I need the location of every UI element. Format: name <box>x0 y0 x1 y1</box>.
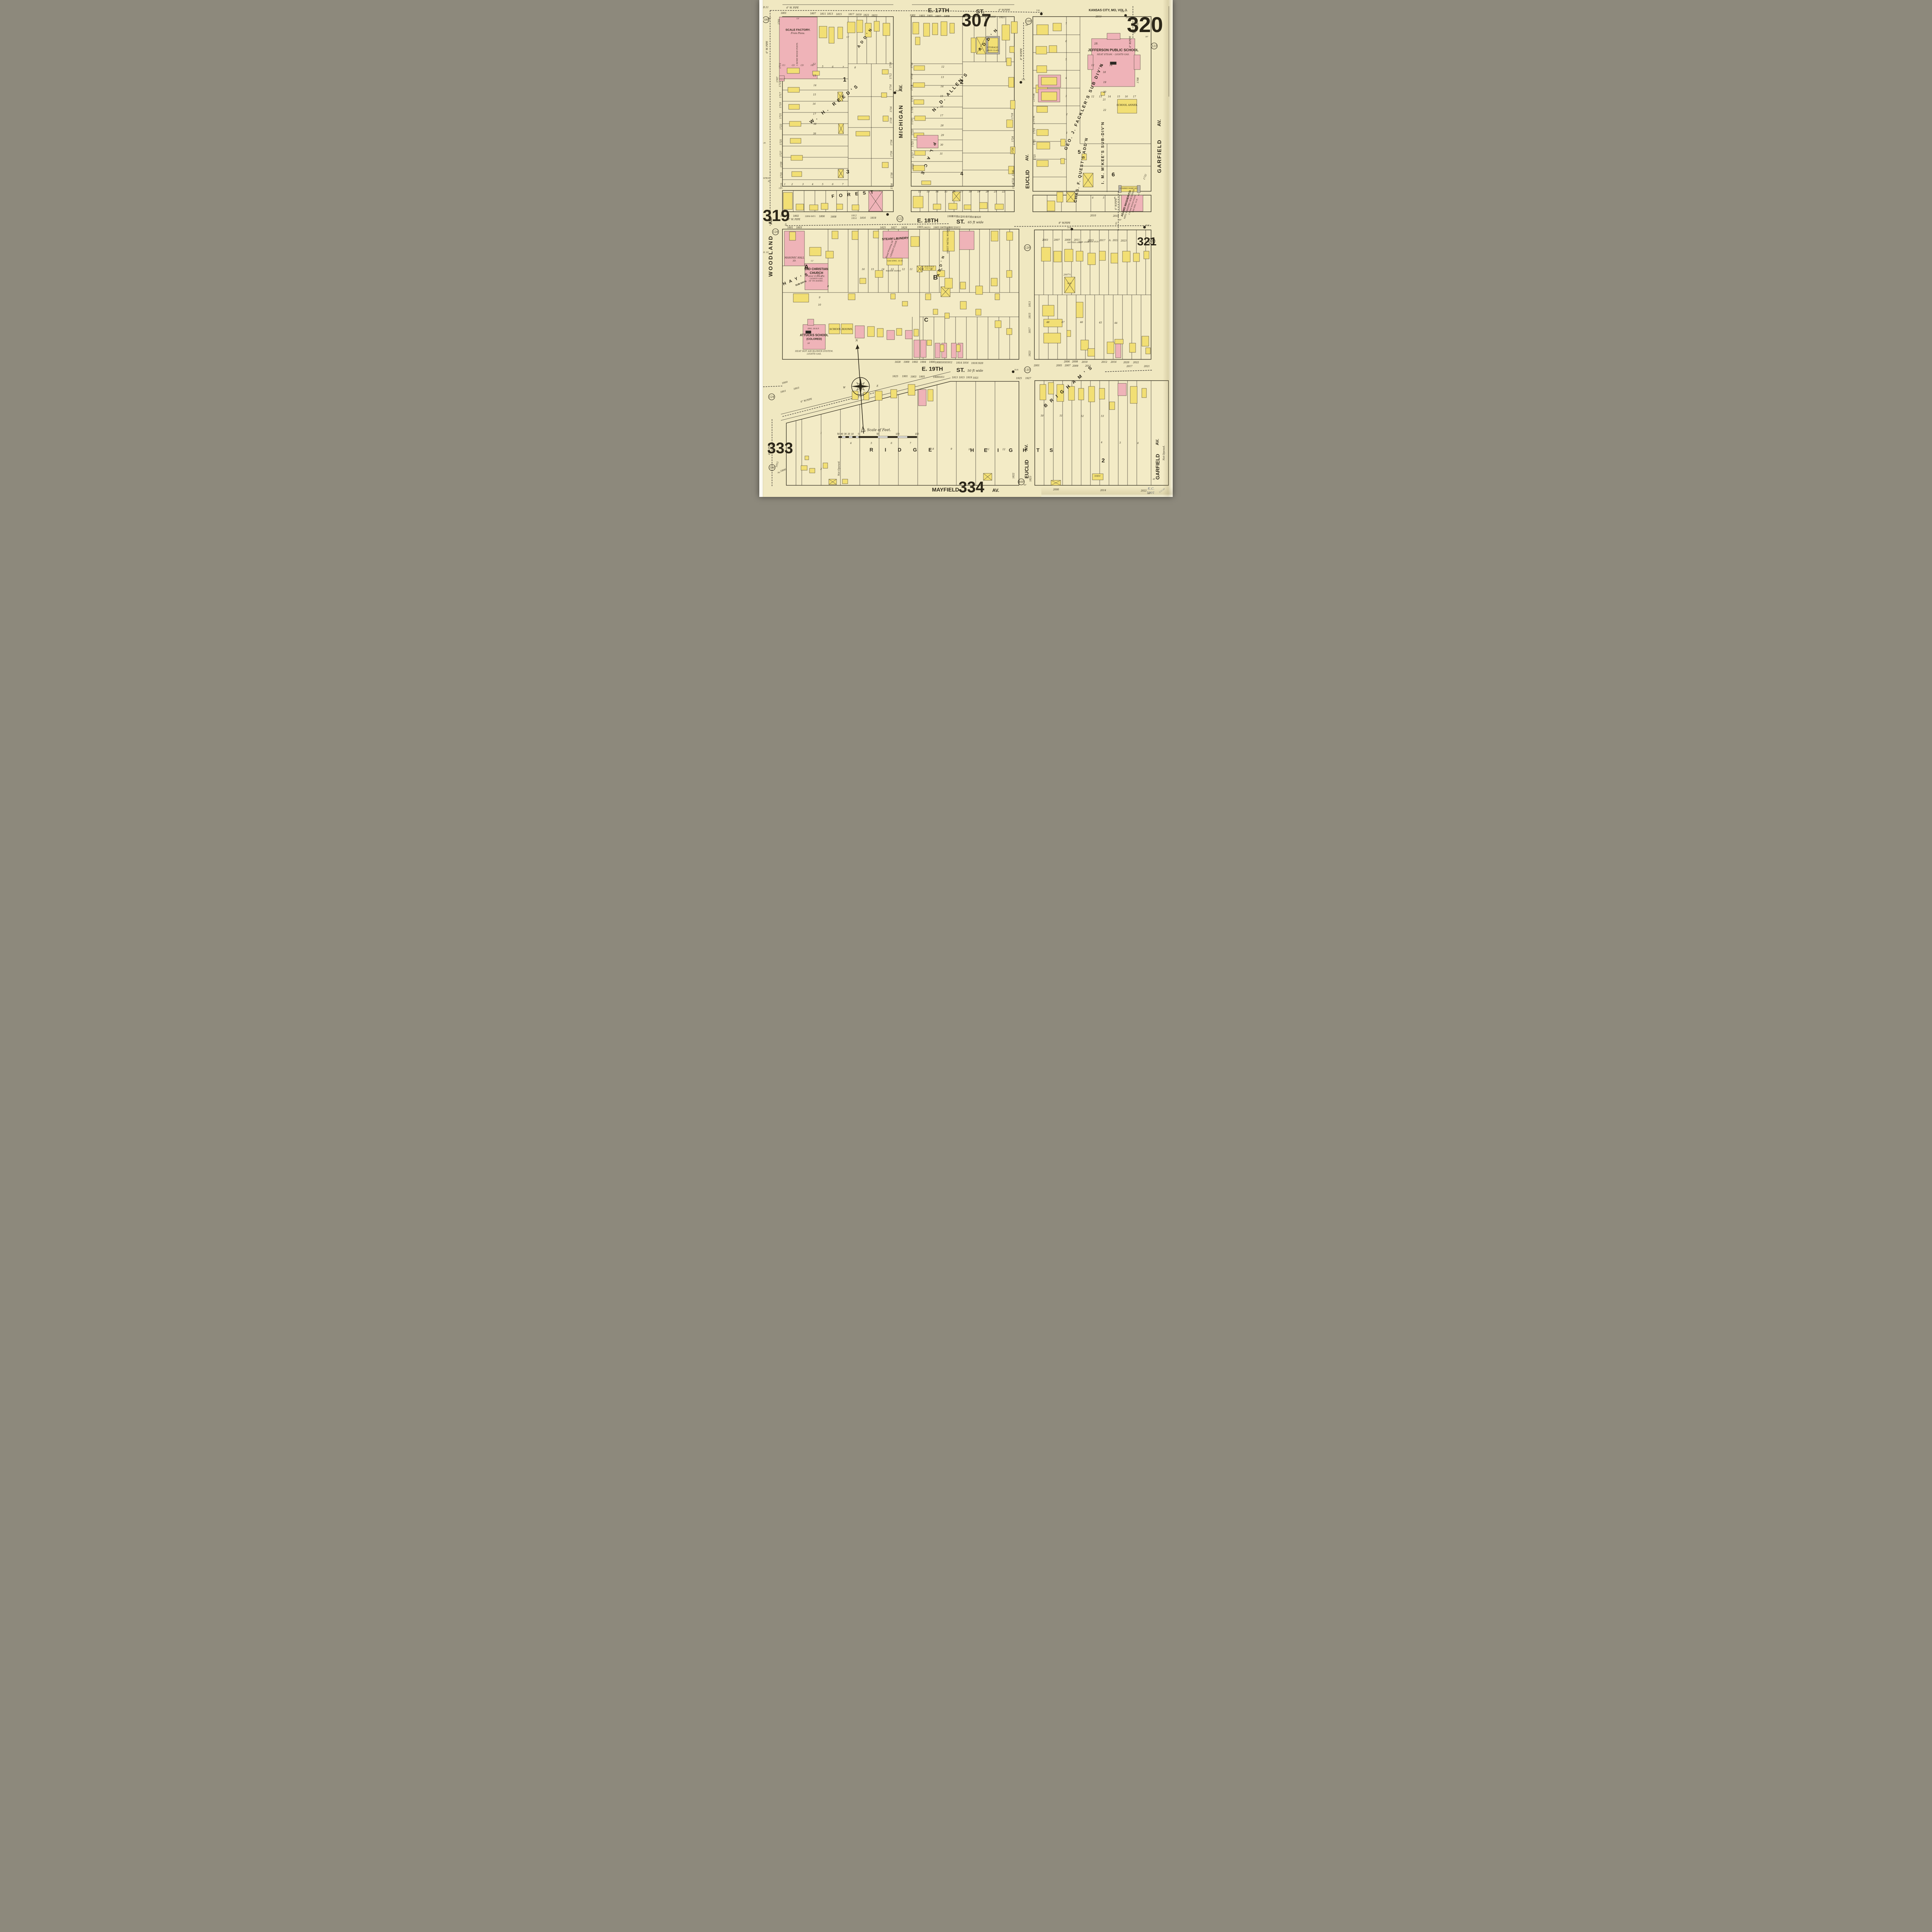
map-label: 1718 <box>890 117 893 123</box>
building-frame <box>1011 22 1017 33</box>
map-label: 1719 <box>1034 128 1036 134</box>
map-label: 1730 <box>891 172 893 178</box>
pipe-ref-number: 100 <box>763 19 769 22</box>
map-label: D.H. <box>1014 369 1019 371</box>
map-label: 2020 <box>1123 362 1129 364</box>
map-label: 1724 <box>891 139 893 145</box>
map-label: 1700 <box>1137 22 1139 28</box>
map-label: 4" W. PIPE <box>786 7 799 9</box>
pipe-ref-number: 120 <box>1025 247 1030 250</box>
map-label: 2012 <box>1101 361 1107 364</box>
map-label: 1723 <box>780 124 782 129</box>
building-frame <box>1041 247 1051 261</box>
scan-edge <box>759 0 763 497</box>
water-pipe-line <box>1014 226 1151 226</box>
map-label: 8 <box>827 286 829 288</box>
map-label: 51 <box>1060 415 1063 417</box>
map-label: 1725 <box>912 141 914 147</box>
map-label: 28' <box>808 343 810 345</box>
pipe-ref-number: 122 <box>897 218 903 221</box>
building-frame <box>852 391 858 400</box>
block-c: C <box>924 317 929 323</box>
map-label: 2021 <box>1144 366 1150 368</box>
map-label: 1905 <box>919 376 925 378</box>
pipe-ref-number: 109 <box>1026 20 1031 23</box>
map-label: 9 <box>930 269 932 271</box>
map-label: 1828 <box>895 361 900 364</box>
scale-bar-segment <box>859 436 878 438</box>
map-label: 6" W.PIPE <box>1129 36 1132 48</box>
building-frame <box>1107 342 1114 354</box>
map-label: 14 <box>940 86 944 88</box>
bldg-school-annex: SCHOOL ANNEX. <box>1116 104 1138 107</box>
block-b: B <box>933 274 938 281</box>
building-frame <box>787 68 799 73</box>
map-label: AV. <box>1156 439 1160 446</box>
scale-tick-label: 150 <box>915 433 919 435</box>
building-frame <box>911 236 919 247</box>
map-label: 19 <box>1103 82 1106 84</box>
map-label: 6 <box>1092 197 1094 199</box>
building-frame <box>933 204 941 209</box>
building-frame <box>1037 25 1048 35</box>
street-euclid-upper: EUCLID <box>1025 170 1030 189</box>
building-frame <box>1007 120 1013 128</box>
building-frame <box>1061 139 1065 146</box>
map-label: (IRON CLAD) <box>986 50 998 52</box>
map-label: 1912 <box>946 362 952 364</box>
map-label: A. <box>1109 240 1111 242</box>
building-frame <box>914 100 924 104</box>
map-label: 7 <box>821 276 823 278</box>
map-label: 12 <box>1091 96 1094 98</box>
map-label: 46 <box>1080 321 1083 324</box>
map-label: 1806 <box>819 216 825 218</box>
building-frame <box>789 104 799 109</box>
building-frame <box>1041 92 1057 100</box>
scale-bar-segment <box>838 436 842 438</box>
pipe-ref-number: 123 <box>1151 45 1157 48</box>
scale-tick-label: 100 <box>896 433 900 435</box>
map-label: 20 <box>1103 91 1106 94</box>
map-label: D.H. <box>1145 225 1150 227</box>
map-label: 5 <box>822 184 823 186</box>
map-label: 6 <box>1065 41 1067 43</box>
map-label: T.H. <box>1036 10 1040 12</box>
map-label: 65 ft wide <box>968 221 984 224</box>
map-label: 30 <box>940 144 943 146</box>
building-frame <box>1142 388 1146 398</box>
building-frame <box>1047 201 1055 211</box>
building-frame <box>810 247 821 256</box>
map-label: 1721 <box>780 113 782 119</box>
map-label: 13 <box>1099 96 1102 98</box>
map-label: 1716 <box>890 106 893 112</box>
map-label: 13 <box>941 77 944 79</box>
building-frame <box>882 162 888 168</box>
scale-title: Scale of Feet. <box>867 429 891 432</box>
map-label: 1921 <box>973 377 978 379</box>
map-label: 1909 <box>944 15 949 18</box>
map-label: 1729 <box>912 163 915 169</box>
map-label: 1804-04½ <box>805 216 816 218</box>
map-label: 1733 <box>781 183 783 189</box>
map-label: 1905 <box>933 227 939 229</box>
map-label: 2010 <box>1082 361 1087 364</box>
map-label: 2013 <box>1095 16 1101 18</box>
map-label: 1813 <box>827 13 833 15</box>
building-frame <box>915 151 925 155</box>
map-label: 1818 <box>870 217 876 219</box>
map-label: 1816 <box>860 217 866 219</box>
building-frame <box>842 479 848 484</box>
scale-bar-segment <box>852 436 856 438</box>
map-label: GAS ENG. 15 H. <box>887 260 903 262</box>
map-label: 14 <box>881 269 884 271</box>
map-label: 20 <box>986 191 989 193</box>
map-label: D.11 <box>763 7 769 9</box>
bldg-2nd-christian-church: 2ND CHRISTIAN <box>804 268 828 271</box>
pipe-ref-number: 156 <box>769 466 775 469</box>
scale-bar-segment <box>845 436 849 438</box>
map-label: 8 <box>941 269 942 271</box>
ref-page-333: 333 <box>767 440 793 456</box>
map-label: 17 <box>1133 96 1136 98</box>
scale-tick-label: 30 <box>844 433 847 435</box>
map-label: 10 <box>818 304 821 306</box>
building-frame <box>940 345 944 352</box>
map-label: 1726 <box>891 151 893 156</box>
map-label: 3 <box>802 184 804 186</box>
map-label: 50' <box>777 472 781 474</box>
map-label: 1829 <box>901 227 907 229</box>
map-label: 50 ft wide <box>968 369 983 372</box>
building-frame <box>1078 388 1084 400</box>
map-label: 5 <box>822 66 823 68</box>
building-frame <box>838 27 843 39</box>
page-number-320: 320 <box>1127 14 1163 36</box>
map-label: 1729 <box>781 162 783 167</box>
map-label: 1717 <box>912 96 914 102</box>
map-label: 31 <box>940 153 943 155</box>
map-label: 1823 <box>871 15 877 17</box>
building-brick <box>918 389 926 406</box>
block-5: 5 <box>1078 149 1081 155</box>
map-label: 15 <box>940 95 943 98</box>
map-label: 1823 <box>1030 476 1032 481</box>
building-frame <box>875 270 883 277</box>
map-label: 16 <box>813 103 816 105</box>
map-label: 1701 <box>778 19 781 24</box>
map-label: 1711 <box>911 62 913 68</box>
building-frame <box>1010 46 1014 53</box>
building-frame <box>848 294 855 300</box>
building-frame <box>941 22 947 36</box>
map-label: 1721 <box>912 119 914 124</box>
building-brick <box>1116 344 1121 358</box>
building-frame <box>1037 129 1048 136</box>
map-label: 1921 <box>999 17 1005 19</box>
map-label: 1825 <box>880 227 886 229</box>
map-label: 50' <box>1133 32 1136 34</box>
map-label: 1823 <box>1029 350 1031 356</box>
map-label: AV. <box>768 218 773 224</box>
map-label: 2017 <box>1099 240 1105 242</box>
map-label: 1731 <box>781 172 783 178</box>
building-frame <box>980 202 987 209</box>
building-frame <box>896 328 902 335</box>
building-frame <box>991 231 998 241</box>
building-frame <box>950 23 954 33</box>
building-frame <box>933 309 938 315</box>
street-e18th: E. 18TH <box>917 218 938 224</box>
map-label: 14 <box>813 85 816 87</box>
map-label: 8" W.PIPE <box>1059 222 1070 224</box>
building-frame <box>789 121 801 126</box>
map-label: 2006 <box>1064 361 1070 363</box>
building-frame <box>867 327 874 337</box>
map-label: 2016 <box>1111 361 1116 364</box>
map-label: 19 <box>977 191 980 193</box>
map-label: 8 <box>854 67 856 69</box>
map-label: 1724 <box>1012 136 1014 142</box>
map-label: 50' <box>1119 219 1122 221</box>
street-mayfield: MAYFIELD <box>932 487 959 492</box>
map-label: E <box>877 385 878 388</box>
map-label: 1911 <box>949 227 955 229</box>
building-frame <box>1088 253 1095 265</box>
map-label: 5 <box>1103 197 1104 199</box>
map-label: 15 <box>1117 96 1120 98</box>
map-label: 1920 <box>977 362 983 365</box>
map-label: 1 <box>784 184 786 186</box>
pipe-ref-number: 124 <box>769 396 774 399</box>
building-frame <box>883 116 888 121</box>
map-label: 1803 <box>796 227 802 229</box>
building-frame <box>1049 46 1057 53</box>
street-michigan: MICHIGAN <box>898 105 903 138</box>
map-label: 50' <box>1024 485 1027 486</box>
map-label: T.H. <box>1022 79 1026 81</box>
map-label: 1915 <box>959 377 964 379</box>
map-label: 1812 <box>851 215 857 217</box>
map-label: 6" W. PIPE <box>766 41 769 53</box>
building-frame <box>1076 251 1083 261</box>
map-label: N <box>855 340 858 342</box>
map-label: 1909 <box>933 376 939 379</box>
building-frame <box>1146 348 1150 354</box>
building-brick <box>887 330 895 340</box>
map-label: 2011 <box>1074 239 1080 241</box>
map-label: 1813 <box>1029 301 1031 307</box>
map-label: 13 <box>1100 65 1103 67</box>
map-label: CHURCH <box>810 272 823 275</box>
building-brick <box>1088 55 1093 70</box>
map-label: 2007½ <box>1063 274 1071 276</box>
street-woodland: WOODLAND <box>768 235 773 277</box>
building-frame <box>883 23 890 36</box>
scale-tick-label: 50 <box>837 433 840 435</box>
map-label: 1715 <box>911 85 913 90</box>
map-label: 1927 <box>1025 378 1031 380</box>
map-label: 13' <box>817 275 820 277</box>
map-label: 1919 <box>966 377 972 379</box>
block-6: 6 <box>1112 172 1115 178</box>
building-frame <box>995 321 1001 328</box>
building-frame <box>1007 328 1012 335</box>
building-frame <box>923 23 930 36</box>
building-frame <box>1040 384 1046 400</box>
map-label: 8" W. PIPE <box>788 219 800 221</box>
map-label: 15' <box>846 37 849 39</box>
building-frame <box>810 468 815 473</box>
pipe-ref-number: 124 <box>773 231 778 234</box>
scale-tick-label: 10 <box>851 433 854 435</box>
map-label: 8 <box>932 448 934 451</box>
building-frame <box>922 181 931 185</box>
map-label: 11 <box>986 449 990 451</box>
building-frame <box>821 203 828 209</box>
street-euclid-lower: EUCLID <box>1024 460 1029 478</box>
map-label: 1902 <box>912 361 918 364</box>
map-label: 1727 <box>912 152 915 158</box>
building-frame <box>913 22 919 34</box>
building-frame <box>823 463 828 468</box>
map-label: 13 <box>891 269 894 271</box>
building-frame <box>913 83 925 87</box>
map-label: 1727 <box>780 151 782 156</box>
map-label: 1821 <box>863 14 869 17</box>
building-frame <box>1037 142 1050 149</box>
building-frame <box>806 331 811 333</box>
building-frame <box>1099 251 1105 260</box>
map-label: 60' <box>1026 25 1029 27</box>
water-pipe-line <box>940 11 1043 12</box>
map-label: 7 <box>842 66 844 69</box>
map-label: T.H. <box>1121 11 1124 13</box>
building-frame <box>1048 383 1054 394</box>
building-frame <box>1010 100 1015 109</box>
map-label: 14 <box>935 191 939 193</box>
map-label: 7 <box>842 184 844 186</box>
building-frame <box>875 391 882 400</box>
map-label: 1811 <box>820 13 826 15</box>
building-frame <box>1054 251 1061 262</box>
building-frame <box>829 27 834 43</box>
map-label: 1708 <box>1137 77 1139 83</box>
map-label: 44 <box>1114 322 1117 325</box>
building-frame <box>1088 349 1095 356</box>
map-label: 8" W.PIPE <box>1020 48 1023 60</box>
map-label: 1901 <box>910 15 915 17</box>
map-label: 1710 <box>890 62 892 68</box>
map-label: 1801 <box>787 227 793 229</box>
building-frame <box>1037 66 1047 73</box>
building-frame <box>1076 302 1083 318</box>
building-frame <box>1041 77 1057 85</box>
map-label: 1906 <box>929 361 935 364</box>
map-label: 12 <box>941 66 944 68</box>
map-label: 1822 <box>1013 473 1015 478</box>
map-label: ST. <box>956 367 965 373</box>
building-frame <box>1002 25 1010 40</box>
map-label: 1807 <box>810 13 816 15</box>
map-label: 16' TO EAVES. - <box>809 281 825 282</box>
map-label: 1 <box>1066 132 1068 134</box>
map-label: 4 <box>1114 197 1116 199</box>
map-label: 2009 <box>1072 365 1078 367</box>
map-label: 1908 <box>935 362 940 364</box>
map-label: 1920 <box>975 216 981 219</box>
paper-fold-right <box>1163 0 1173 497</box>
street-garfield-lower: GARFIELD <box>1155 454 1160 480</box>
map-label: 16 <box>862 269 865 271</box>
map-label: 4 <box>850 442 852 445</box>
map-label: 2011 <box>1085 365 1091 367</box>
map-label: AV. <box>1026 155 1030 161</box>
building-frame <box>1007 270 1012 277</box>
map-label: 50 <box>1041 415 1044 417</box>
map-label: 1719 <box>780 102 782 108</box>
block-2-ridge: 2 <box>1102 458 1105 464</box>
map-label: 1723 <box>912 129 914 135</box>
map-label: 1904 <box>920 361 926 364</box>
water-pipe-line <box>786 224 949 226</box>
map-label: 2015 <box>1088 240 1094 242</box>
building-frame <box>852 231 858 240</box>
building-frame <box>1061 158 1065 164</box>
map-label: From Plans. <box>791 32 805 35</box>
map-label: PATROL. <box>762 178 770 180</box>
map-label: 13 <box>927 191 930 193</box>
map-label: 9 <box>951 448 952 451</box>
map-label: 1905 <box>927 15 932 17</box>
map-label: 1910 <box>940 362 946 364</box>
building-frame <box>945 313 949 318</box>
building-frame <box>1130 386 1137 403</box>
map-label: 6" W.PIPE <box>769 443 771 455</box>
building-frame <box>801 466 807 470</box>
map-label: 1719 <box>912 107 914 113</box>
block-1: 1 <box>843 77 847 83</box>
map-label: OLD. <box>1067 283 1072 285</box>
map-label: 2 <box>1066 114 1068 116</box>
scale-bar-segment <box>907 436 917 438</box>
map-label: 12 <box>918 191 921 193</box>
map-label: D.H. <box>895 90 900 92</box>
map-label: 16 <box>1125 96 1128 98</box>
subdiv-mkees: I. M. M'KEE'S SUB-DIV'N <box>1101 121 1105 184</box>
building-frame <box>1067 330 1071 337</box>
building-frame <box>852 205 859 210</box>
map-label: 1901 <box>902 376 908 378</box>
map-label: 2 <box>1138 194 1139 196</box>
map-label: 15 <box>813 94 816 96</box>
map-label: (2) <box>792 65 795 67</box>
map-label: 14 <box>1109 65 1112 67</box>
map-label: 2017 <box>1126 366 1132 368</box>
hydrant-dot <box>1020 81 1022 84</box>
building-frame <box>1088 386 1095 402</box>
map-label: 16 <box>940 106 943 108</box>
map-label: 17 <box>813 113 816 116</box>
building-frame <box>789 232 796 240</box>
building-frame <box>1111 253 1118 263</box>
building-frame <box>913 196 923 208</box>
building-frame <box>819 26 827 38</box>
map-label: (3) <box>801 65 804 67</box>
ref-page-334: 334 <box>959 480 985 495</box>
